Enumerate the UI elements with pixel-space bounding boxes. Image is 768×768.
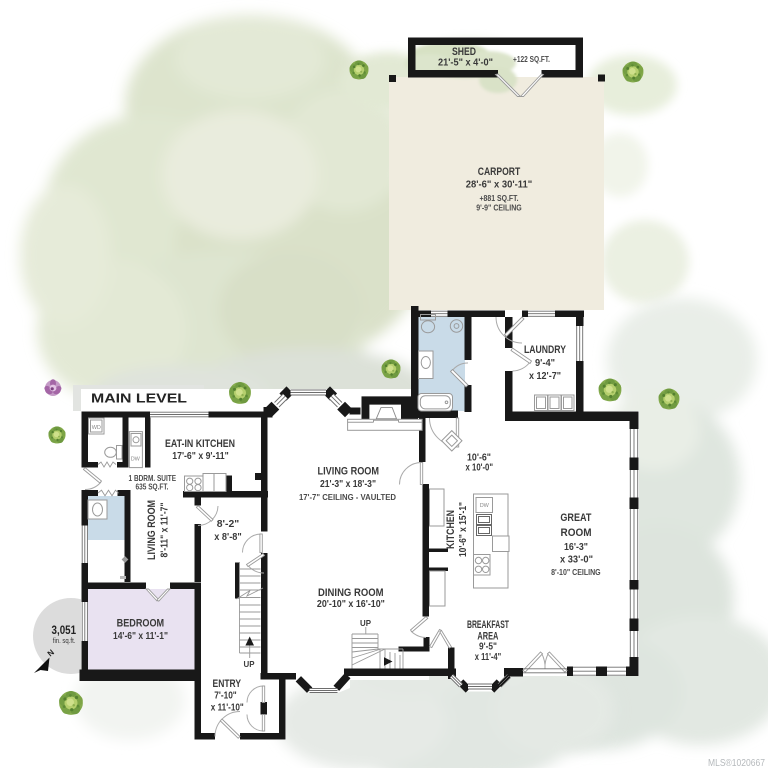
svg-text:MLS®1020667: MLS®1020667 — [708, 758, 765, 768]
svg-text:17'-6" x 9'-11": 17'-6" x 9'-11" — [172, 450, 229, 462]
svg-text:WD: WD — [92, 425, 101, 431]
svg-text:21'-3" x 18'-3": 21'-3" x 18'-3" — [320, 478, 376, 490]
svg-text:8'-2": 8'-2" — [217, 518, 240, 530]
svg-text:GREAT: GREAT — [560, 512, 591, 524]
svg-text:LAUNDRY: LAUNDRY — [524, 344, 567, 356]
svg-text:10'-6" x 15'-1": 10'-6" x 15'-1" — [457, 502, 469, 557]
svg-text:x 33'-0": x 33'-0" — [560, 553, 593, 565]
svg-text:9'-9" CEILING: 9'-9" CEILING — [476, 203, 522, 212]
svg-text:ENTRY: ENTRY — [213, 678, 242, 690]
svg-text:CARPORT: CARPORT — [478, 166, 521, 178]
svg-text:x 8'-8": x 8'-8" — [214, 531, 242, 543]
svg-text:7'-10": 7'-10" — [214, 690, 237, 702]
svg-text:x 11'-4": x 11'-4" — [475, 651, 502, 663]
svg-text:UP: UP — [360, 618, 371, 628]
svg-text:BEDROOM: BEDROOM — [117, 618, 165, 630]
svg-text:KITCHEN: KITCHEN — [445, 510, 457, 549]
svg-text:BREAKFAST: BREAKFAST — [467, 619, 509, 631]
svg-text:DW: DW — [131, 457, 141, 463]
svg-text:fin. sq.ft.: fin. sq.ft. — [53, 638, 76, 645]
svg-text:8'-10" CEILING: 8'-10" CEILING — [551, 568, 601, 577]
svg-text:x 11'-10": x 11'-10" — [211, 702, 244, 714]
svg-text:+122 SQ.FT.: +122 SQ.FT. — [513, 55, 550, 64]
svg-text:UP: UP — [244, 659, 255, 669]
svg-text:635 SQ.FT.: 635 SQ.FT. — [136, 482, 169, 491]
svg-text:EAT-IN KITCHEN: EAT-IN KITCHEN — [165, 438, 235, 450]
svg-text:+881 SQ.FT.: +881 SQ.FT. — [480, 194, 519, 203]
svg-text:LIVING ROOM: LIVING ROOM — [318, 465, 380, 477]
svg-text:21'-5" x 4'-0": 21'-5" x 4'-0" — [438, 56, 493, 68]
svg-text:DW: DW — [480, 503, 490, 509]
svg-text:20'-10" x 16'-10": 20'-10" x 16'-10" — [317, 598, 385, 610]
svg-text:ROOM: ROOM — [561, 527, 592, 539]
svg-text:LIVING ROOM: LIVING ROOM — [146, 500, 158, 560]
svg-text:8'-11" x 11'-7": 8'-11" x 11'-7" — [159, 502, 171, 557]
svg-text:9'-4": 9'-4" — [535, 357, 555, 369]
svg-text:17'-7" CEILING - VAULTED: 17'-7" CEILING - VAULTED — [299, 493, 396, 502]
svg-text:3,051: 3,051 — [52, 623, 77, 637]
svg-text:28'-6" x 30'-11": 28'-6" x 30'-11" — [466, 178, 533, 190]
svg-text:x 12'-7": x 12'-7" — [529, 370, 561, 382]
svg-text:16'-3": 16'-3" — [564, 541, 588, 553]
svg-text:MAIN LEVEL: MAIN LEVEL — [91, 392, 187, 406]
svg-text:x 10'-0": x 10'-0" — [466, 462, 494, 474]
svg-text:14'-6" x 11'-1": 14'-6" x 11'-1" — [113, 630, 168, 642]
